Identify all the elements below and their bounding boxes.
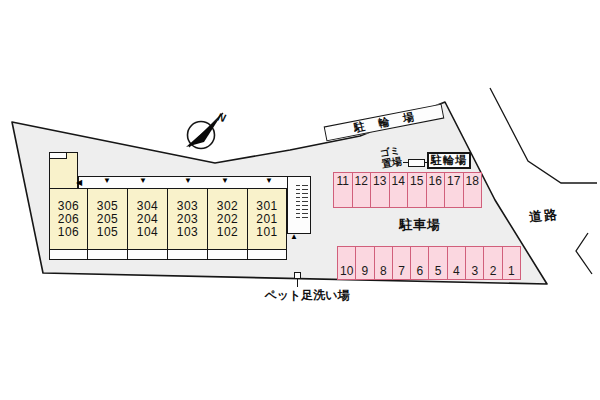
road-edge-line <box>576 233 592 274</box>
balcony-cell <box>87 249 128 260</box>
building-units-row: 306 206 106 305 205 105 304 204 104 303 … <box>49 188 287 250</box>
parking-space: 8 <box>374 246 393 280</box>
parking-space: 11 <box>333 172 353 208</box>
unit-cell: 303 203 103 <box>167 188 208 250</box>
road-edge-line <box>490 88 597 183</box>
site-plan: N 306 206 106 305 205 105 304 204 104 30… <box>0 0 600 400</box>
stairs-treads-gap <box>300 185 302 218</box>
parking-space: 4 <box>447 246 466 280</box>
parking-space: 6 <box>410 246 429 280</box>
entry-arrow-icon: ▼ <box>139 177 147 185</box>
parking-row-top: 11 12 13 14 15 16 17 18 <box>333 172 482 208</box>
unit-cell: 301 201 101 <box>247 188 287 250</box>
entry-arrow-icon: ▼ <box>221 177 229 185</box>
parking-space: 10 <box>337 246 356 280</box>
balcony-cell <box>49 249 88 260</box>
parking-space: 13 <box>370 172 390 208</box>
parking-space: 1 <box>502 246 521 280</box>
pet-wash-marker <box>294 272 301 279</box>
compass-north-label: N <box>216 111 228 125</box>
stairs-up-arrow-icon: ▲ <box>290 233 298 241</box>
balcony-cell <box>167 249 208 260</box>
building-tower-notch <box>49 152 67 159</box>
garbage-bin-marker <box>408 159 425 167</box>
parking-space: 17 <box>444 172 464 208</box>
entry-arrow-icon: ▼ <box>184 177 192 185</box>
parking-lot-label: 駐車場 <box>396 216 444 234</box>
pet-wash-label: ペット足洗い場 <box>262 287 352 304</box>
pet-wash-leader-line <box>297 279 298 287</box>
stairs-treads-icon <box>296 185 308 218</box>
parking-space: 16 <box>426 172 446 208</box>
parking-space: 15 <box>407 172 427 208</box>
unit-cell: 302 202 102 <box>207 188 248 250</box>
unit-cell: 305 205 105 <box>87 188 128 250</box>
parking-space: 7 <box>392 246 411 280</box>
parking-space: 5 <box>428 246 447 280</box>
corridor-end-arrow-icon: ◀ <box>76 179 82 187</box>
parking-space: 2 <box>483 246 502 280</box>
parking-space: 9 <box>355 246 374 280</box>
parking-space: 14 <box>389 172 409 208</box>
parking-row-bottom: 10 9 8 7 6 5 4 3 2 1 <box>337 246 521 280</box>
north-compass-icon: N <box>186 111 228 149</box>
building-balcony-row <box>49 249 287 260</box>
unit-cell: 304 204 104 <box>127 188 168 250</box>
entry-arrow-icon: ▼ <box>265 177 273 185</box>
balcony-cell <box>247 249 287 260</box>
parking-space: 3 <box>465 246 484 280</box>
unit-cell: 306 206 106 <box>49 188 88 250</box>
entry-arrow-icon: ▼ <box>103 177 111 185</box>
parking-space: 18 <box>463 172 483 208</box>
bicycle-parking-box: 駐輪場 <box>427 152 471 169</box>
balcony-cell <box>127 249 168 260</box>
balcony-cell <box>207 249 248 260</box>
parking-space: 12 <box>352 172 372 208</box>
